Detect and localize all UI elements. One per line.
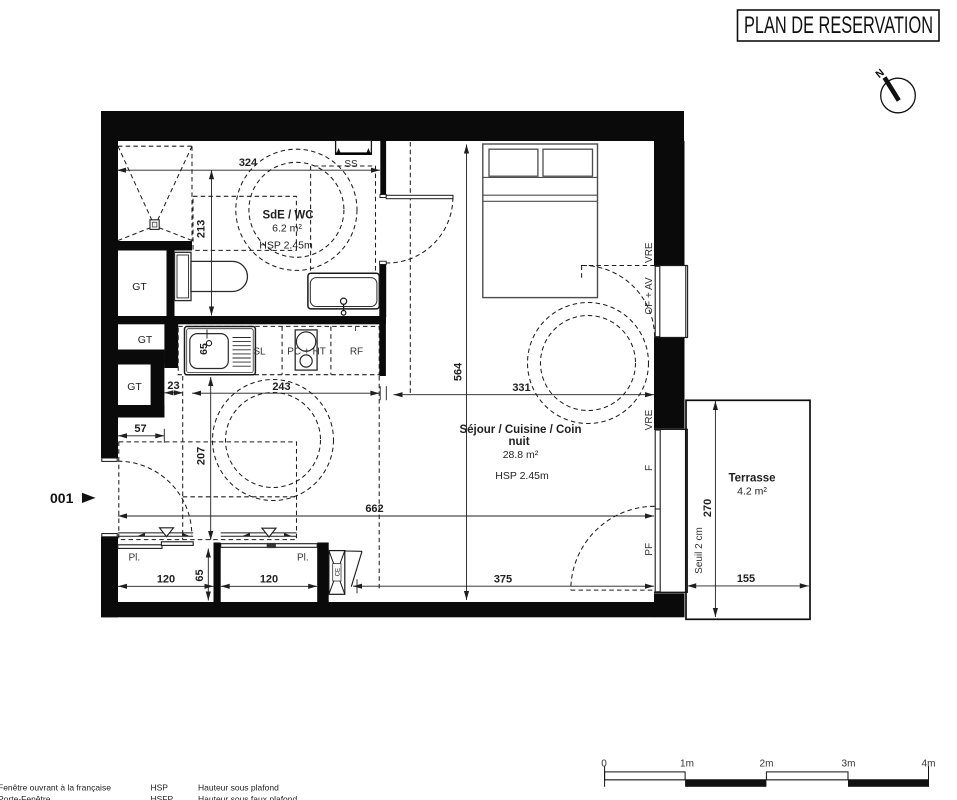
svg-text:001: 001 <box>50 490 74 506</box>
svg-text:SS: SS <box>344 159 358 170</box>
svg-text:PF: PF <box>644 543 655 556</box>
svg-text:0: 0 <box>601 759 607 770</box>
svg-text:120: 120 <box>157 574 175 586</box>
svg-text:Hauteur sous faux plafond: Hauteur sous faux plafond <box>198 794 298 800</box>
svg-text:4m: 4m <box>922 759 936 770</box>
svg-text:Seuil 2 cm: Seuil 2 cm <box>694 527 705 574</box>
svg-text:HSP 2.45m: HSP 2.45m <box>495 470 549 482</box>
svg-text:nuit: nuit <box>508 436 529 448</box>
svg-text:331: 331 <box>512 382 530 394</box>
svg-text:243: 243 <box>272 381 290 393</box>
svg-text:65: 65 <box>198 343 210 355</box>
svg-text:GT: GT <box>132 281 147 293</box>
svg-text:F: F <box>644 465 655 471</box>
svg-text:375: 375 <box>494 574 512 586</box>
svg-text:Pl.: Pl. <box>297 553 309 564</box>
svg-text:213: 213 <box>196 220 208 238</box>
svg-text:2m: 2m <box>760 759 774 770</box>
svg-text:HSP: HSP <box>151 783 169 793</box>
svg-text:Pl.: Pl. <box>129 553 141 564</box>
svg-text:23: 23 <box>167 380 179 392</box>
svg-text:HSFP: HSFP <box>151 794 174 800</box>
svg-text:VRE: VRE <box>644 409 655 430</box>
svg-text:324: 324 <box>239 157 258 169</box>
svg-text:RF: RF <box>350 347 363 358</box>
svg-text:Séjour / Cuisine / Coin: Séjour / Cuisine / Coin <box>459 424 581 436</box>
svg-text:3m: 3m <box>842 759 856 770</box>
svg-text:Fenêtre ouvrant à la française: Fenêtre ouvrant à la française <box>0 783 111 793</box>
svg-text:SdE / WC: SdE / WC <box>262 210 313 222</box>
svg-text:PC + HT: PC + HT <box>287 347 326 358</box>
svg-text:270: 270 <box>702 499 714 517</box>
svg-text:662: 662 <box>365 503 383 515</box>
svg-text:PLAN DE RESERVATION: PLAN DE RESERVATION <box>744 12 933 39</box>
svg-text:207: 207 <box>196 447 208 465</box>
svg-text:CE: CE <box>336 568 342 576</box>
svg-text:564: 564 <box>453 362 465 381</box>
svg-text:155: 155 <box>737 573 755 585</box>
svg-text:28.8 m²: 28.8 m² <box>503 449 539 461</box>
svg-text:120: 120 <box>260 574 278 586</box>
svg-text:6.2 m²: 6.2 m² <box>272 223 302 235</box>
svg-text:SL: SL <box>253 347 266 358</box>
svg-text:57: 57 <box>134 423 146 435</box>
svg-text:OF + AV: OF + AV <box>644 277 655 315</box>
svg-text:GT: GT <box>138 334 153 346</box>
svg-text:1m: 1m <box>680 759 694 770</box>
svg-text:VRE: VRE <box>644 242 655 263</box>
svg-text:HSP 2.45m: HSP 2.45m <box>259 240 313 252</box>
svg-text:65: 65 <box>194 569 206 581</box>
svg-text:Porte-Fenêtre: Porte-Fenêtre <box>0 794 51 800</box>
svg-text:Terrasse: Terrasse <box>728 473 775 485</box>
svg-text:Hauteur sous plafond: Hauteur sous plafond <box>198 783 279 793</box>
svg-text:4.2 m²: 4.2 m² <box>737 486 767 498</box>
svg-text:GT: GT <box>127 381 142 393</box>
